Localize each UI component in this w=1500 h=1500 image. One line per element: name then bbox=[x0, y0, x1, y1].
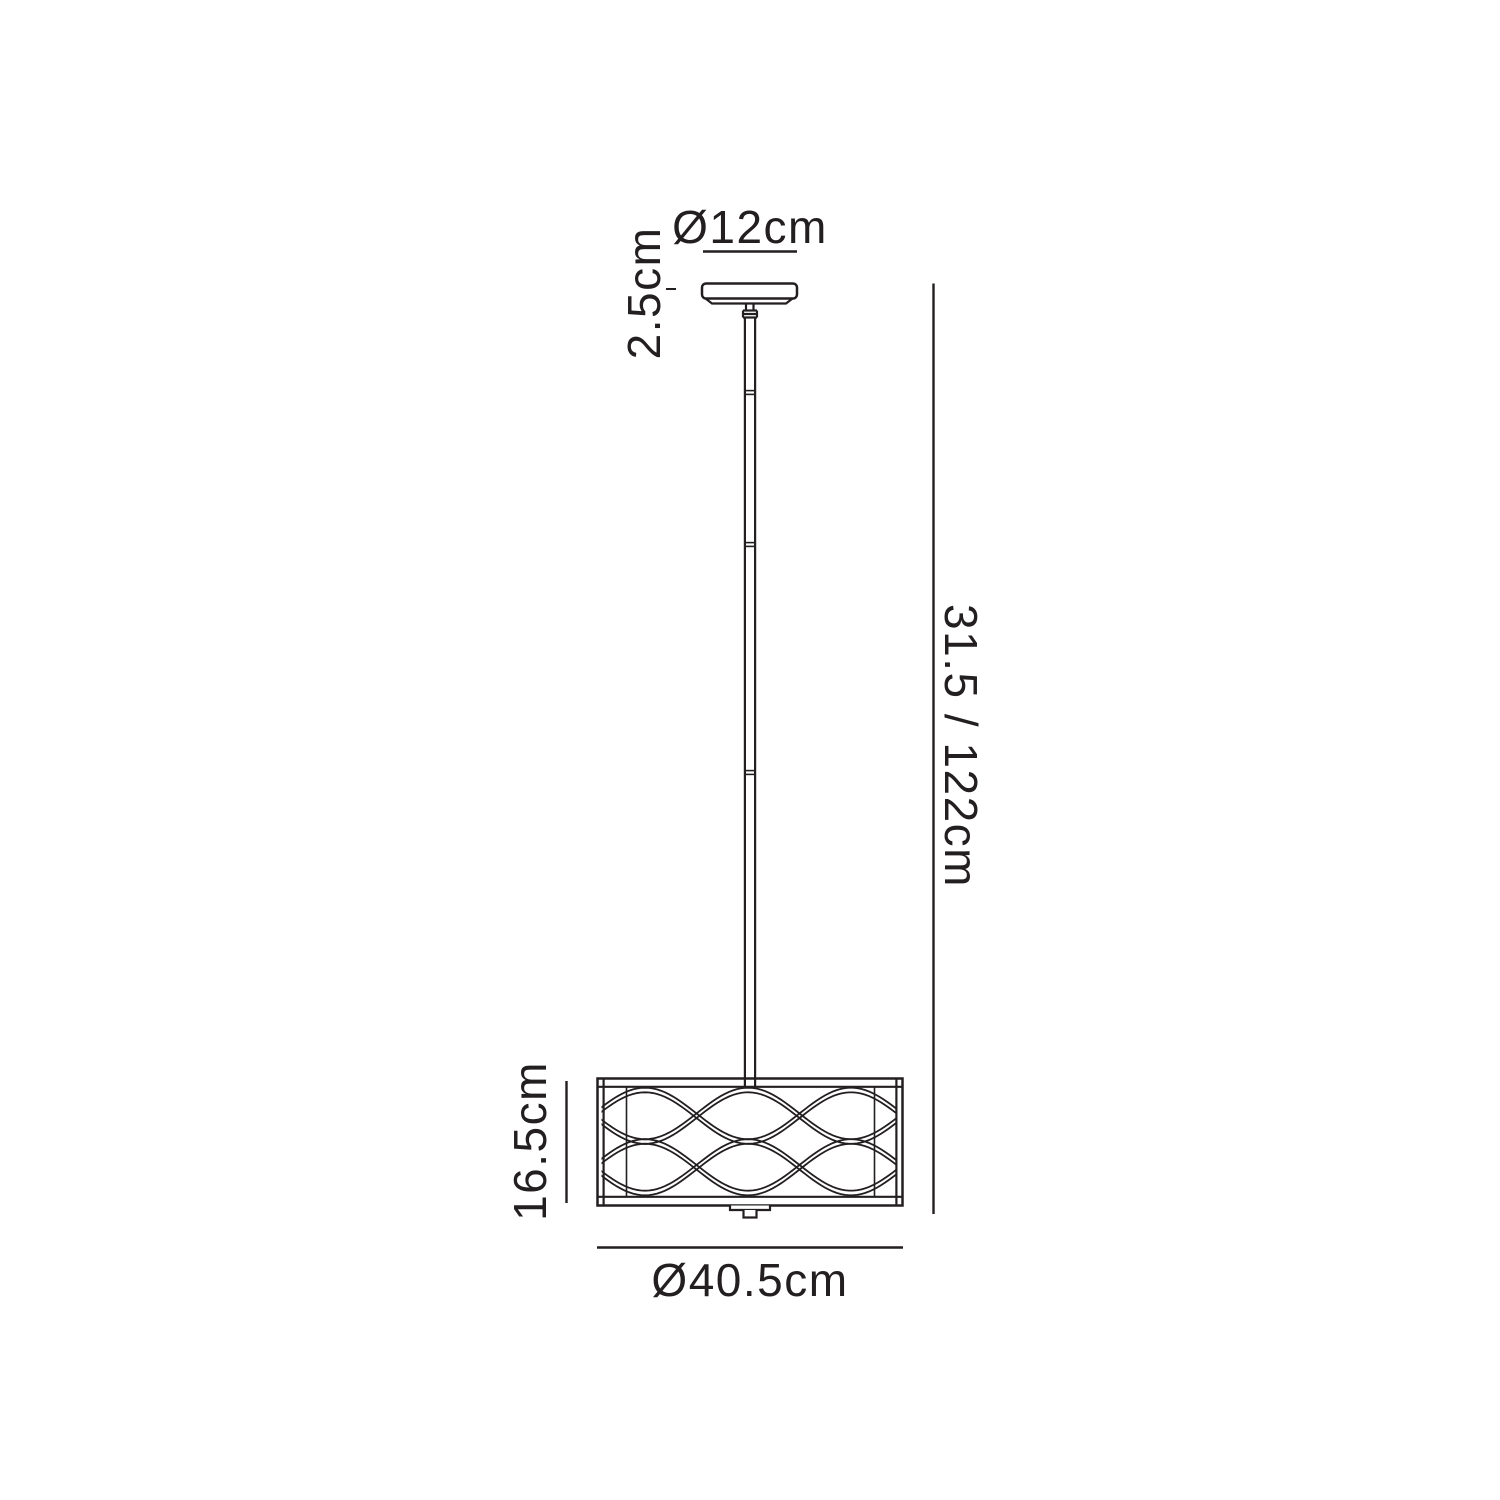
rod-joint bbox=[745, 771, 755, 775]
label-canopy-height: 2.5cm bbox=[618, 227, 670, 360]
hang-straight-joint bbox=[743, 304, 757, 318]
dimension-diagram: Ø12cm 2.5cm 31.5 / 122cm 16.5cm Ø40.5cm bbox=[0, 0, 1500, 1500]
label-shade-diameter: Ø40.5cm bbox=[651, 1254, 848, 1306]
suspension-rod bbox=[745, 318, 755, 1087]
wave-curve bbox=[601, 1088, 897, 1139]
bottom-finial bbox=[730, 1206, 770, 1218]
wave-curve bbox=[601, 1139, 897, 1190]
pendant-light-drawing: Ø12cm 2.5cm 31.5 / 122cm 16.5cm Ø40.5cm bbox=[0, 0, 1500, 1500]
finial-knob bbox=[744, 1210, 757, 1218]
wave-lattice-pattern bbox=[601, 1088, 897, 1196]
label-canopy-diameter: Ø12cm bbox=[672, 201, 828, 253]
wave-curve bbox=[601, 1092, 897, 1143]
label-shade-height: 16.5cm bbox=[504, 1061, 556, 1221]
label-overall-drop: 31.5 / 122cm bbox=[935, 604, 987, 888]
wave-curve bbox=[601, 1088, 897, 1139]
shade-outer-frame bbox=[598, 1079, 903, 1206]
drum-shade bbox=[598, 1079, 903, 1218]
wave-curve bbox=[601, 1139, 897, 1190]
canopy-plate bbox=[702, 284, 797, 299]
ceiling-canopy bbox=[702, 284, 797, 304]
rod-joint bbox=[745, 543, 755, 547]
finial-plate bbox=[730, 1206, 770, 1211]
wave-curve bbox=[601, 1144, 897, 1195]
rod-joint bbox=[745, 391, 755, 395]
wave-curve bbox=[601, 1144, 897, 1195]
wave-curve bbox=[601, 1092, 897, 1143]
